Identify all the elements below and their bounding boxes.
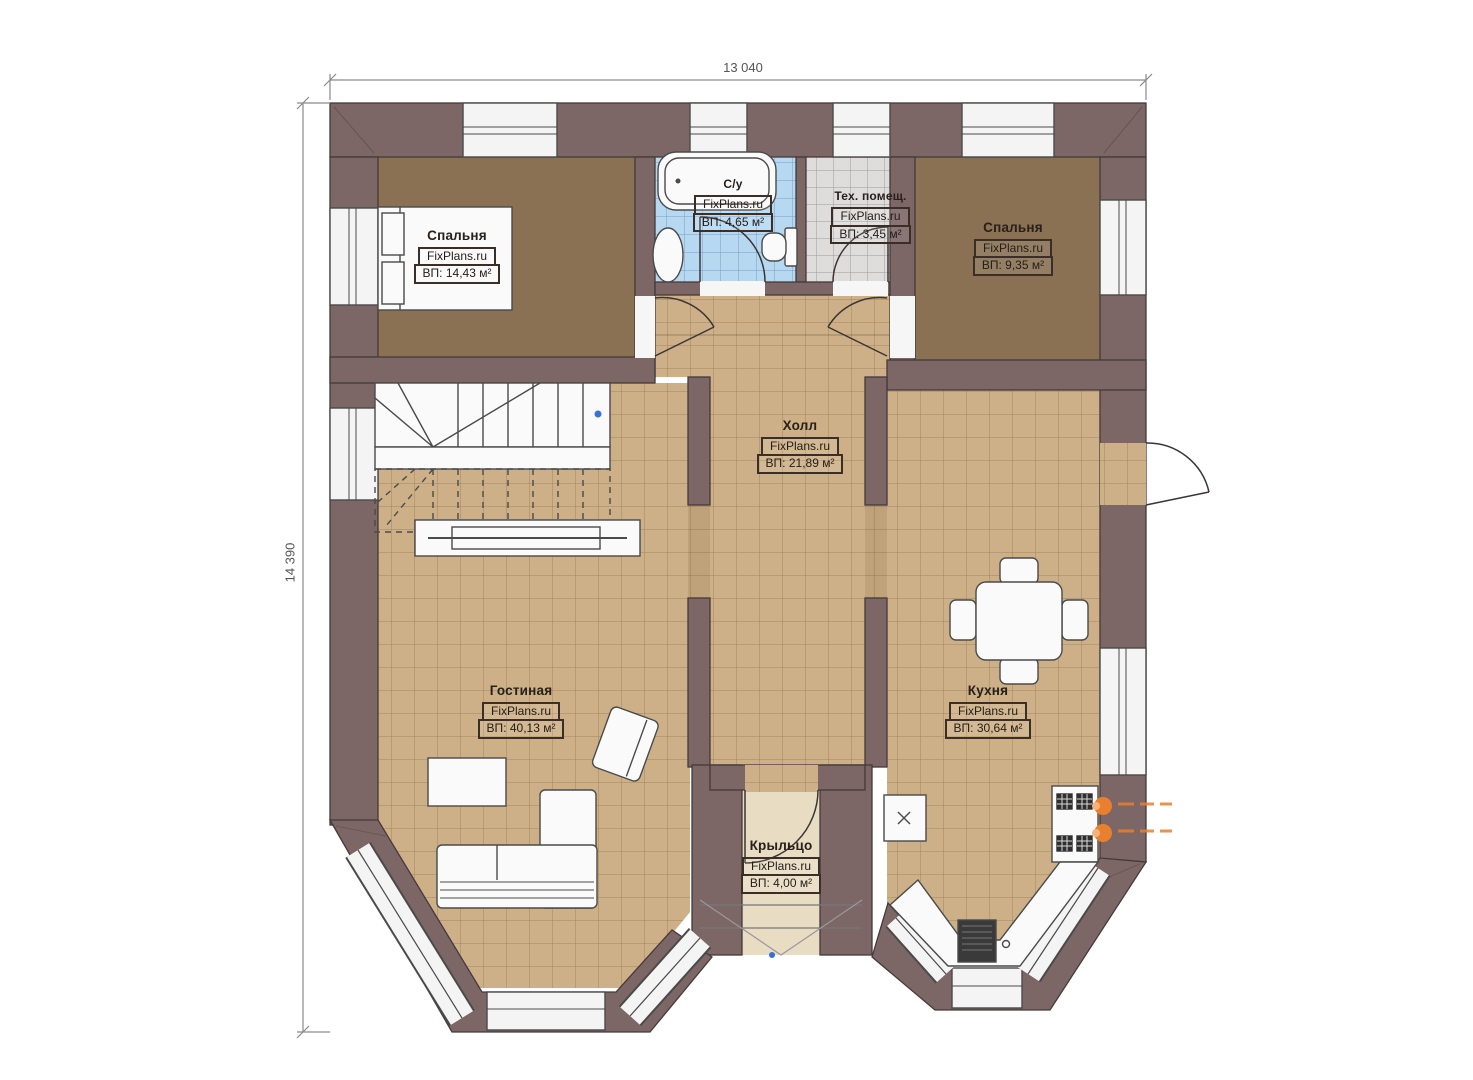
wall-hall-right-a [865, 377, 887, 505]
window-top-2 [690, 103, 747, 157]
hall-corridor-floor [655, 295, 890, 377]
room-area: ВП: 3,45 м² [830, 225, 910, 245]
room-area: ВП: 40,13 м² [478, 719, 565, 739]
wall-hall-left-b [688, 598, 710, 767]
room-name: Тех. помещ. [818, 190, 923, 204]
wall-bedroom1-living [330, 357, 655, 383]
shaft-box [884, 795, 926, 841]
marker-dot [595, 411, 602, 418]
room-area: ВП: 9,35 м² [973, 256, 1053, 276]
dimension-height-label: 14 390 [283, 528, 298, 598]
toilet [762, 228, 797, 266]
entrance-door-arc [1146, 443, 1209, 492]
room-name: Кухня [925, 683, 1051, 699]
room-area: ВП: 4,65 м² [693, 213, 773, 233]
room-area: ВП: 14,43 м² [414, 264, 501, 284]
window-top-3 [833, 103, 890, 157]
window-left-bedroom [330, 208, 378, 305]
entrance-door-leaf [1146, 492, 1209, 505]
wall-bedroom2-kitchen [887, 360, 1146, 390]
coffee-table [428, 758, 506, 806]
bedroom1-door-opening [635, 296, 655, 358]
bedroom2-door-opening [890, 296, 915, 358]
room-name: Холл [737, 418, 863, 434]
window-bay-kitchen-bottom [952, 968, 1022, 1008]
room-label-kitchen: Кухня FixPlans.ru ВП: 30,64 м² [925, 683, 1051, 739]
room-label-bedroom-1: Спальня FixPlans.ru ВП: 14,43 м² [392, 228, 522, 284]
window-right-bedroom2 [1100, 200, 1146, 295]
room-name: Спальня [392, 228, 522, 244]
window-left-stairs [330, 408, 378, 500]
floor-plan-drawing [0, 0, 1473, 1080]
room-label-living-room: Гостиная FixPlans.ru ВП: 40,13 м² [458, 683, 584, 739]
window-right-kitchen [1100, 648, 1146, 775]
bathroom-door-opening [700, 281, 765, 296]
room-area: ВП: 4,00 м² [741, 874, 821, 894]
room-label-bathroom: С/у FixPlans.ru ВП: 4,65 м² [685, 178, 781, 232]
tech-door-opening [833, 281, 888, 296]
wall-hall-right-b [865, 598, 887, 767]
room-label-hall: Холл FixPlans.ru ВП: 21,89 м² [737, 418, 863, 474]
room-area: ВП: 30,64 м² [945, 719, 1032, 739]
window-top-1 [463, 103, 557, 157]
room-name: С/у [685, 178, 781, 192]
window-top-4 [962, 103, 1054, 157]
fireplace-shelf [415, 520, 640, 556]
room-name: Крыльцо [718, 838, 844, 854]
dimension-width-label: 13 040 [708, 60, 778, 75]
window-bay-living-bottom [487, 992, 605, 1030]
room-label-tech-room: Тех. помещ. FixPlans.ru ВП: 3,45 м² [818, 190, 923, 244]
wall-hall-left-a [688, 377, 710, 505]
room-name: Спальня [950, 220, 1076, 236]
room-name: Гостиная [458, 683, 584, 699]
room-area: ВП: 21,89 м² [757, 454, 844, 474]
marker-dot [769, 952, 775, 958]
floor-plan-page: 13 040 14 390 Спальня FixPlans.ru ВП: 14… [0, 0, 1473, 1080]
room-label-porch: Крыльцо FixPlans.ru ВП: 4,00 м² [718, 838, 844, 894]
room-label-bedroom-2: Спальня FixPlans.ru ВП: 9,35 м² [950, 220, 1076, 276]
sink-bathroom [653, 228, 683, 282]
